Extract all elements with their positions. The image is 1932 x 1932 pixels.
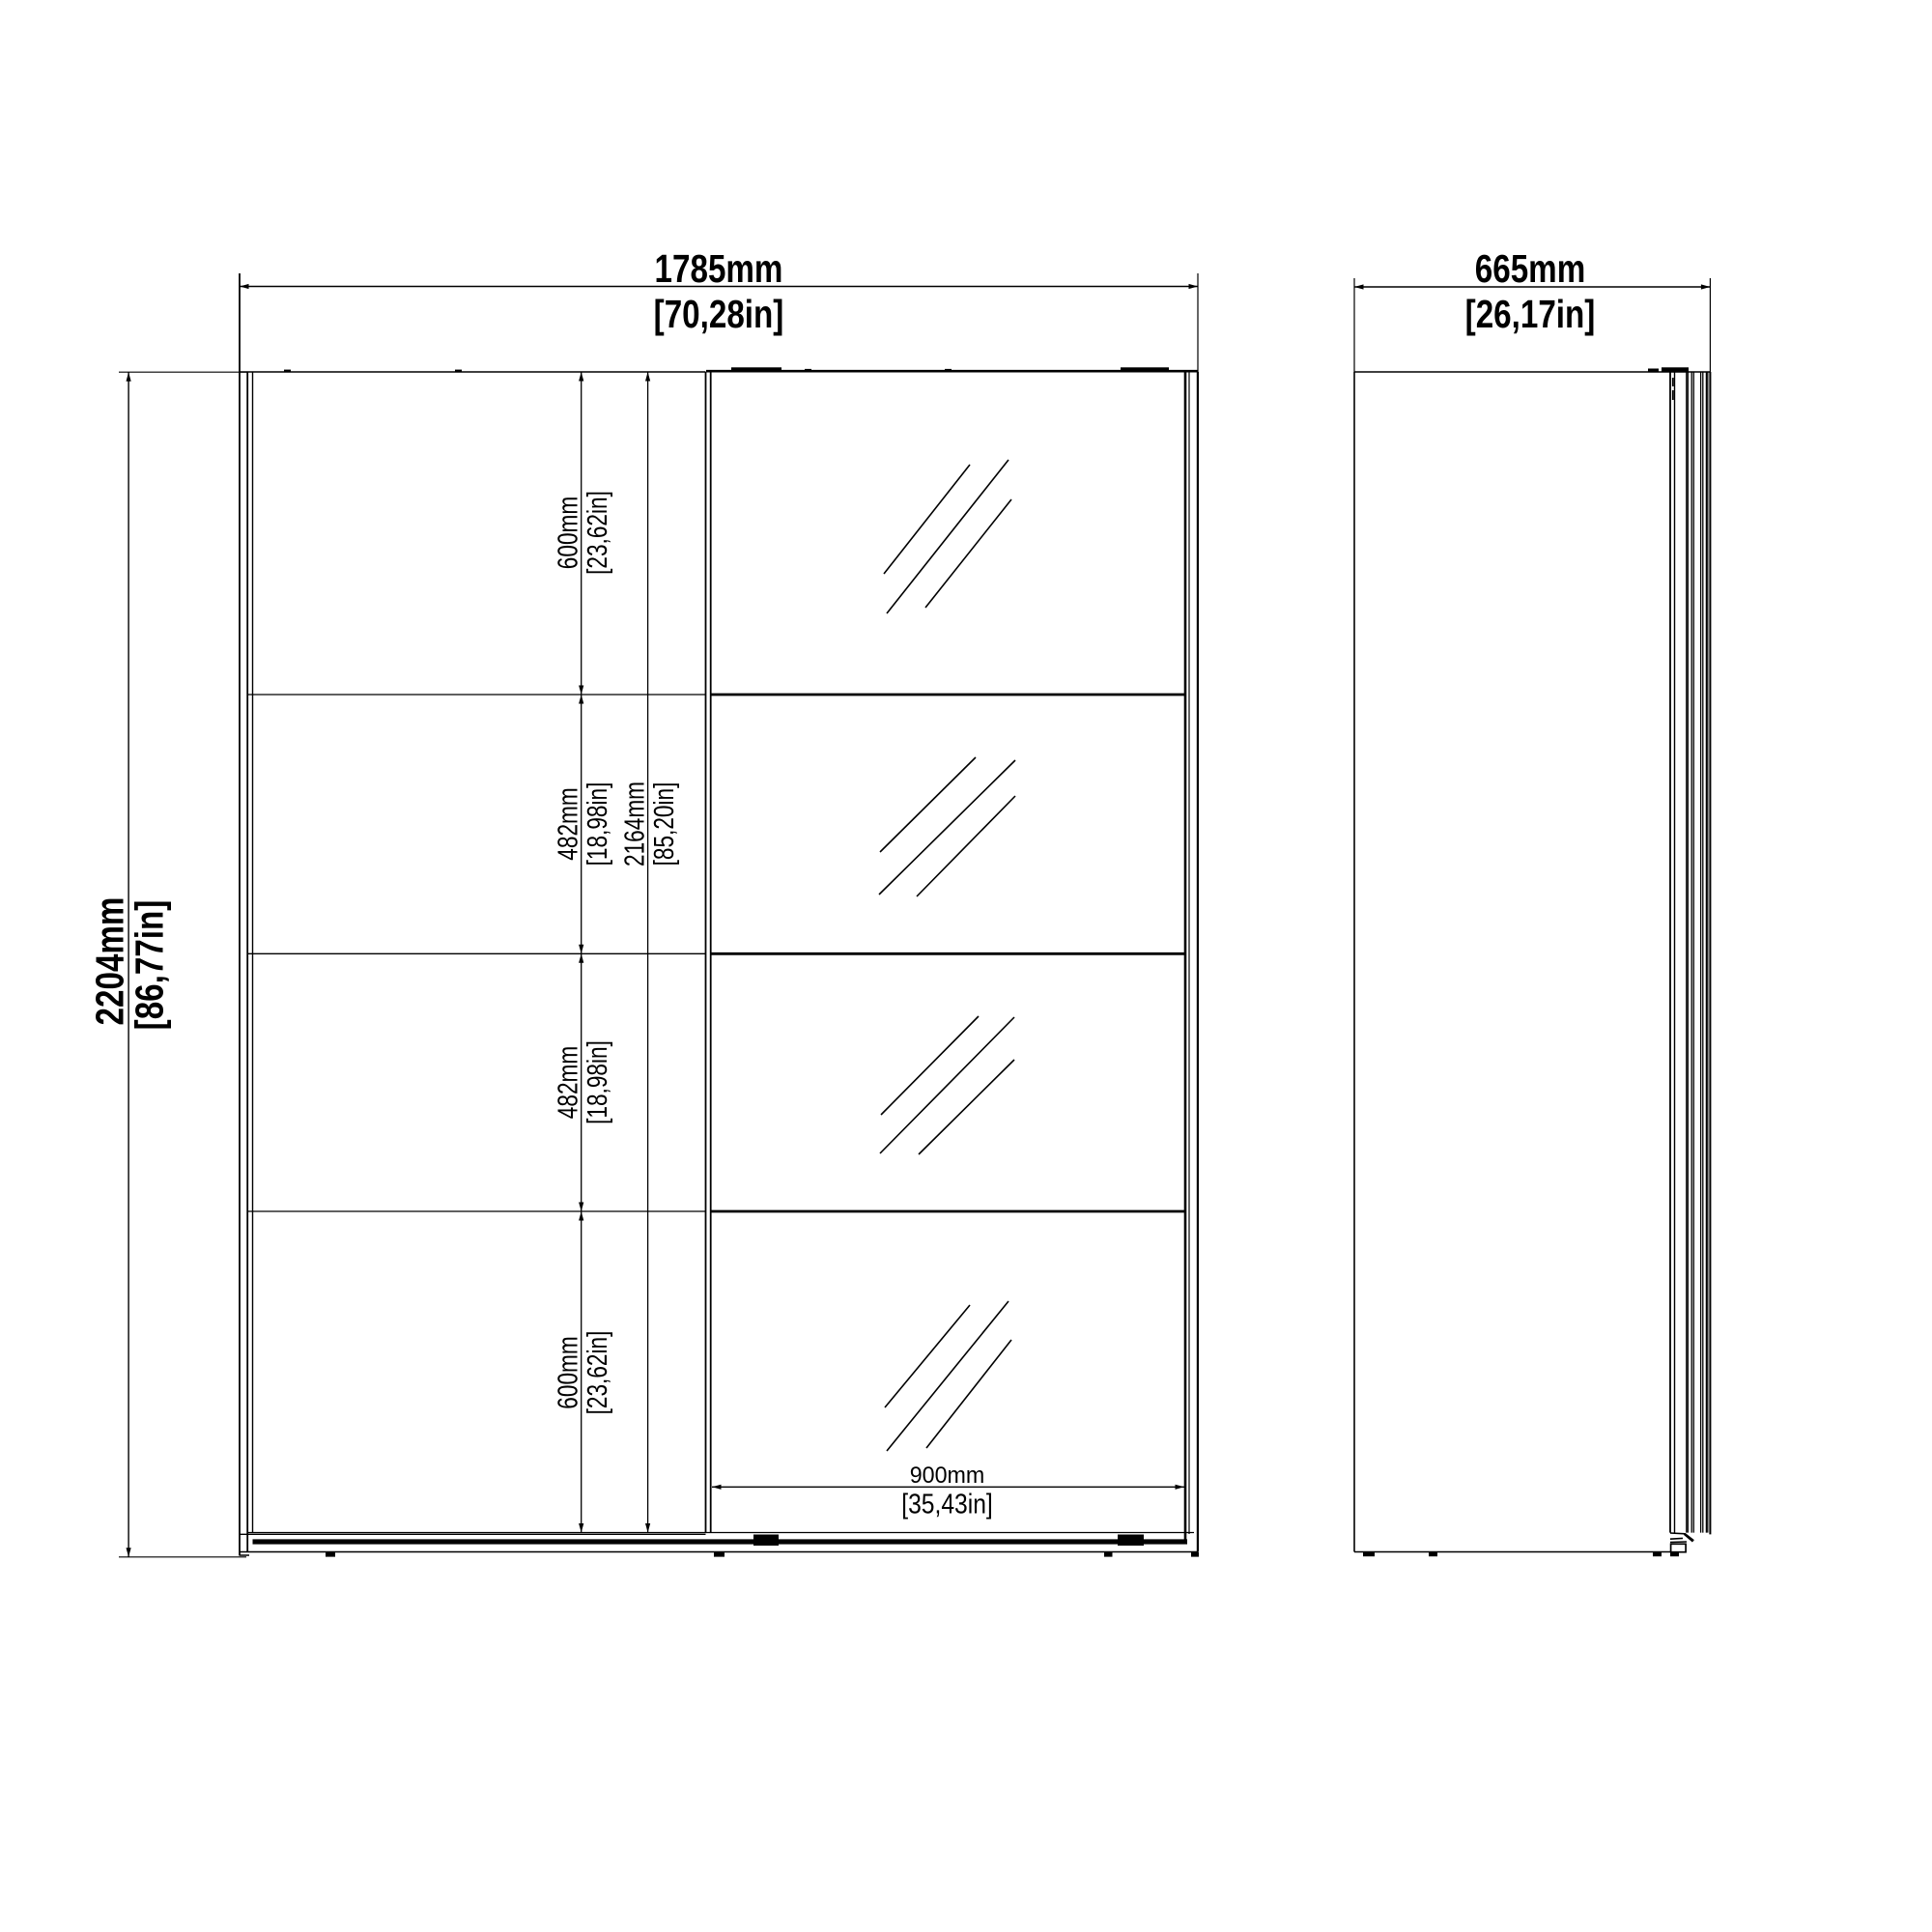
svg-text:2164mm: 2164mm	[618, 781, 650, 867]
svg-text:[18,98in]: [18,98in]	[581, 1040, 612, 1124]
svg-text:482mm: 482mm	[552, 787, 583, 860]
svg-text:[26,17in]: [26,17in]	[1465, 292, 1596, 336]
svg-text:1785mm: 1785mm	[655, 246, 783, 291]
svg-text:[35,43in]: [35,43in]	[901, 1489, 993, 1520]
svg-text:[85,20in]: [85,20in]	[647, 782, 679, 867]
svg-text:[18,98in]: [18,98in]	[581, 782, 612, 867]
svg-text:600mm: 600mm	[552, 497, 583, 569]
svg-text:[23,62in]: [23,62in]	[581, 491, 612, 575]
svg-text:482mm: 482mm	[552, 1046, 583, 1119]
svg-text:600mm: 600mm	[552, 1336, 583, 1408]
svg-text:900mm: 900mm	[910, 1463, 985, 1490]
svg-text:2204mm: 2204mm	[87, 897, 131, 1026]
svg-text:[70,28in]: [70,28in]	[654, 292, 784, 336]
svg-text:665mm: 665mm	[1475, 246, 1585, 291]
svg-text:[86,77in]: [86,77in]	[127, 900, 171, 1031]
svg-text:[23,62in]: [23,62in]	[581, 1331, 612, 1415]
